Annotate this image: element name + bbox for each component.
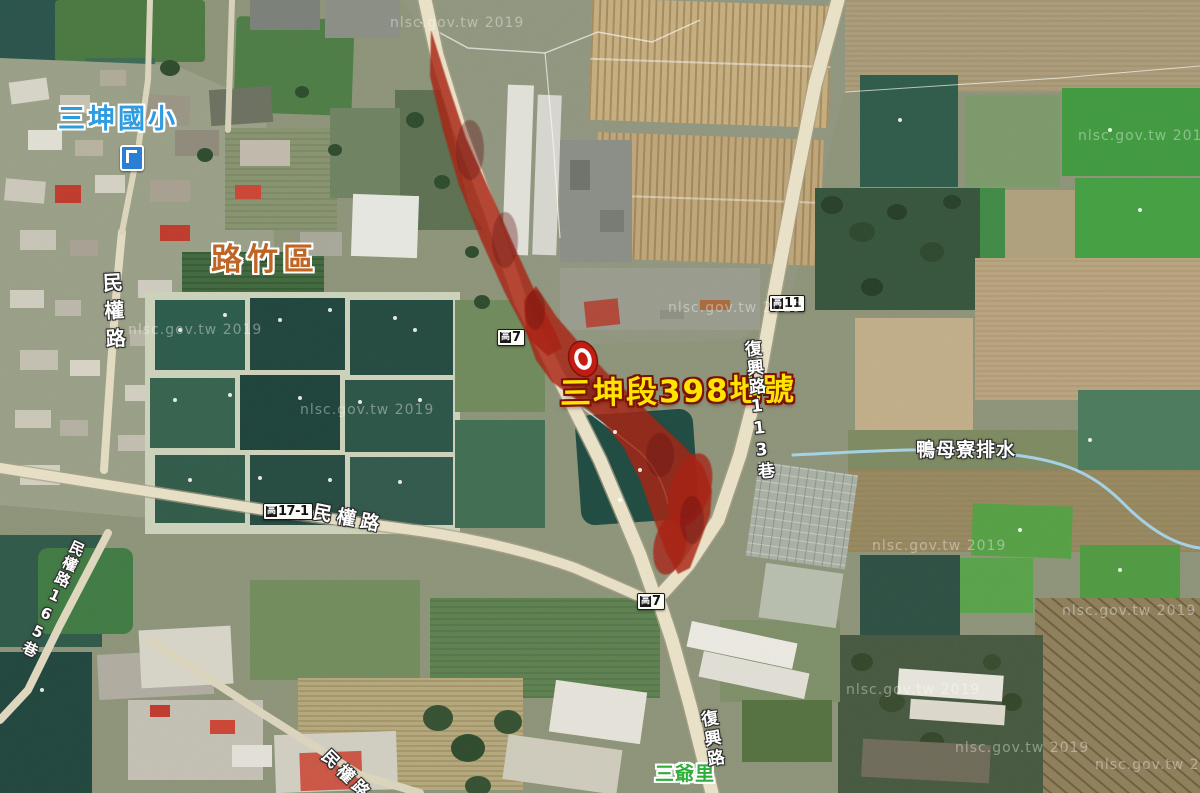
road-badge-number: 11: [784, 296, 801, 311]
road-badge-gao17-1: 高 17-1: [263, 503, 313, 520]
road-badge-gao7-north: 高 7: [497, 329, 525, 346]
map-canvas[interactable]: 三坤國小 路竹區 三坤段398地號 鴨母寮排水 三爺里 民權路 民權路 民權路1…: [0, 0, 1200, 793]
road-badge-prefix: 高: [772, 298, 783, 309]
road-badge-gao11: 高 11: [769, 295, 805, 312]
road-badge-number: 7: [652, 594, 661, 609]
road-badge-prefix: 高: [266, 506, 277, 517]
road-badge-prefix: 高: [500, 332, 511, 343]
road-badge-gao7-south: 高 7: [637, 593, 665, 610]
road-badge-number: 7: [512, 330, 521, 345]
road-badge-prefix: 高: [640, 596, 651, 607]
school-icon: [120, 145, 144, 171]
road-badge-number: 17-1: [278, 504, 309, 519]
satellite-imagery: [0, 0, 1200, 793]
